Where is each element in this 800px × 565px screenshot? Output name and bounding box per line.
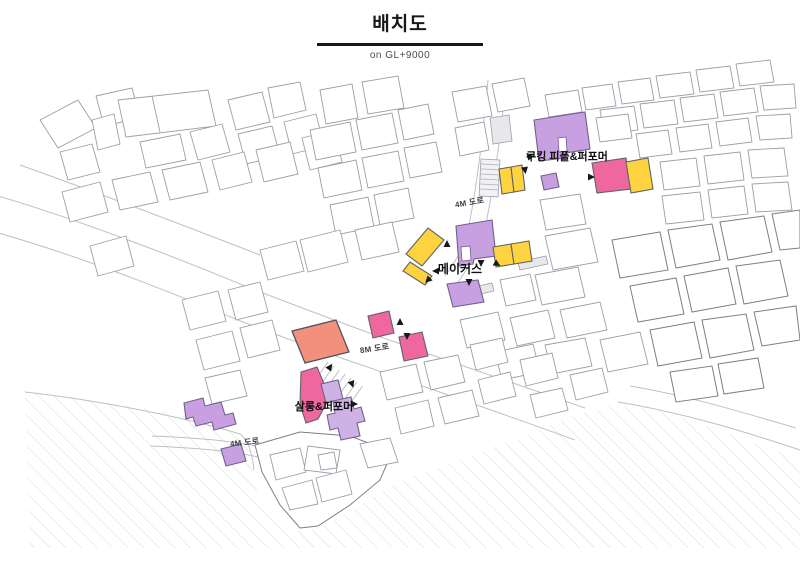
building-makers-yellow-1	[406, 228, 444, 266]
building-cooking-pink	[592, 158, 631, 193]
label-makers-zone: 메이커스	[438, 261, 482, 276]
building-makers-purple-court	[461, 246, 471, 261]
building-salon-pink-2	[399, 332, 428, 361]
building-cooking-yellow-3	[626, 158, 653, 193]
label-cooking-zone: 쿠킹 피플&퍼포머	[526, 149, 608, 163]
building-salon-stage	[300, 367, 326, 423]
label-salon-zone: 살롱&퍼포머	[295, 399, 354, 413]
label-road-8m: 8M 도로	[359, 342, 390, 356]
building-cooking-purple-small	[541, 173, 559, 190]
stairs-top	[479, 159, 500, 197]
label-road-4m-top: 4M 도로	[454, 195, 485, 209]
building-salon-salmon	[292, 320, 349, 363]
building-cooking-purple-court	[558, 137, 567, 152]
site-plan-map: 쿠킹 피플&퍼포머 메이커스 살롱&퍼포머 4M 도로 8M 도로 4M 도로	[0, 0, 800, 565]
page-subtitle: on GL+9000	[0, 50, 800, 61]
title-underline	[317, 43, 483, 46]
building-salon-pink-1	[368, 311, 394, 338]
page-title: 배치도	[0, 14, 800, 37]
building-makers-yellow-4	[511, 241, 532, 264]
header: 배치도 on GL+9000	[0, 14, 800, 61]
building-makers-purple-south	[447, 280, 484, 307]
site-plan-page: 배치도 on GL+9000	[0, 0, 800, 565]
